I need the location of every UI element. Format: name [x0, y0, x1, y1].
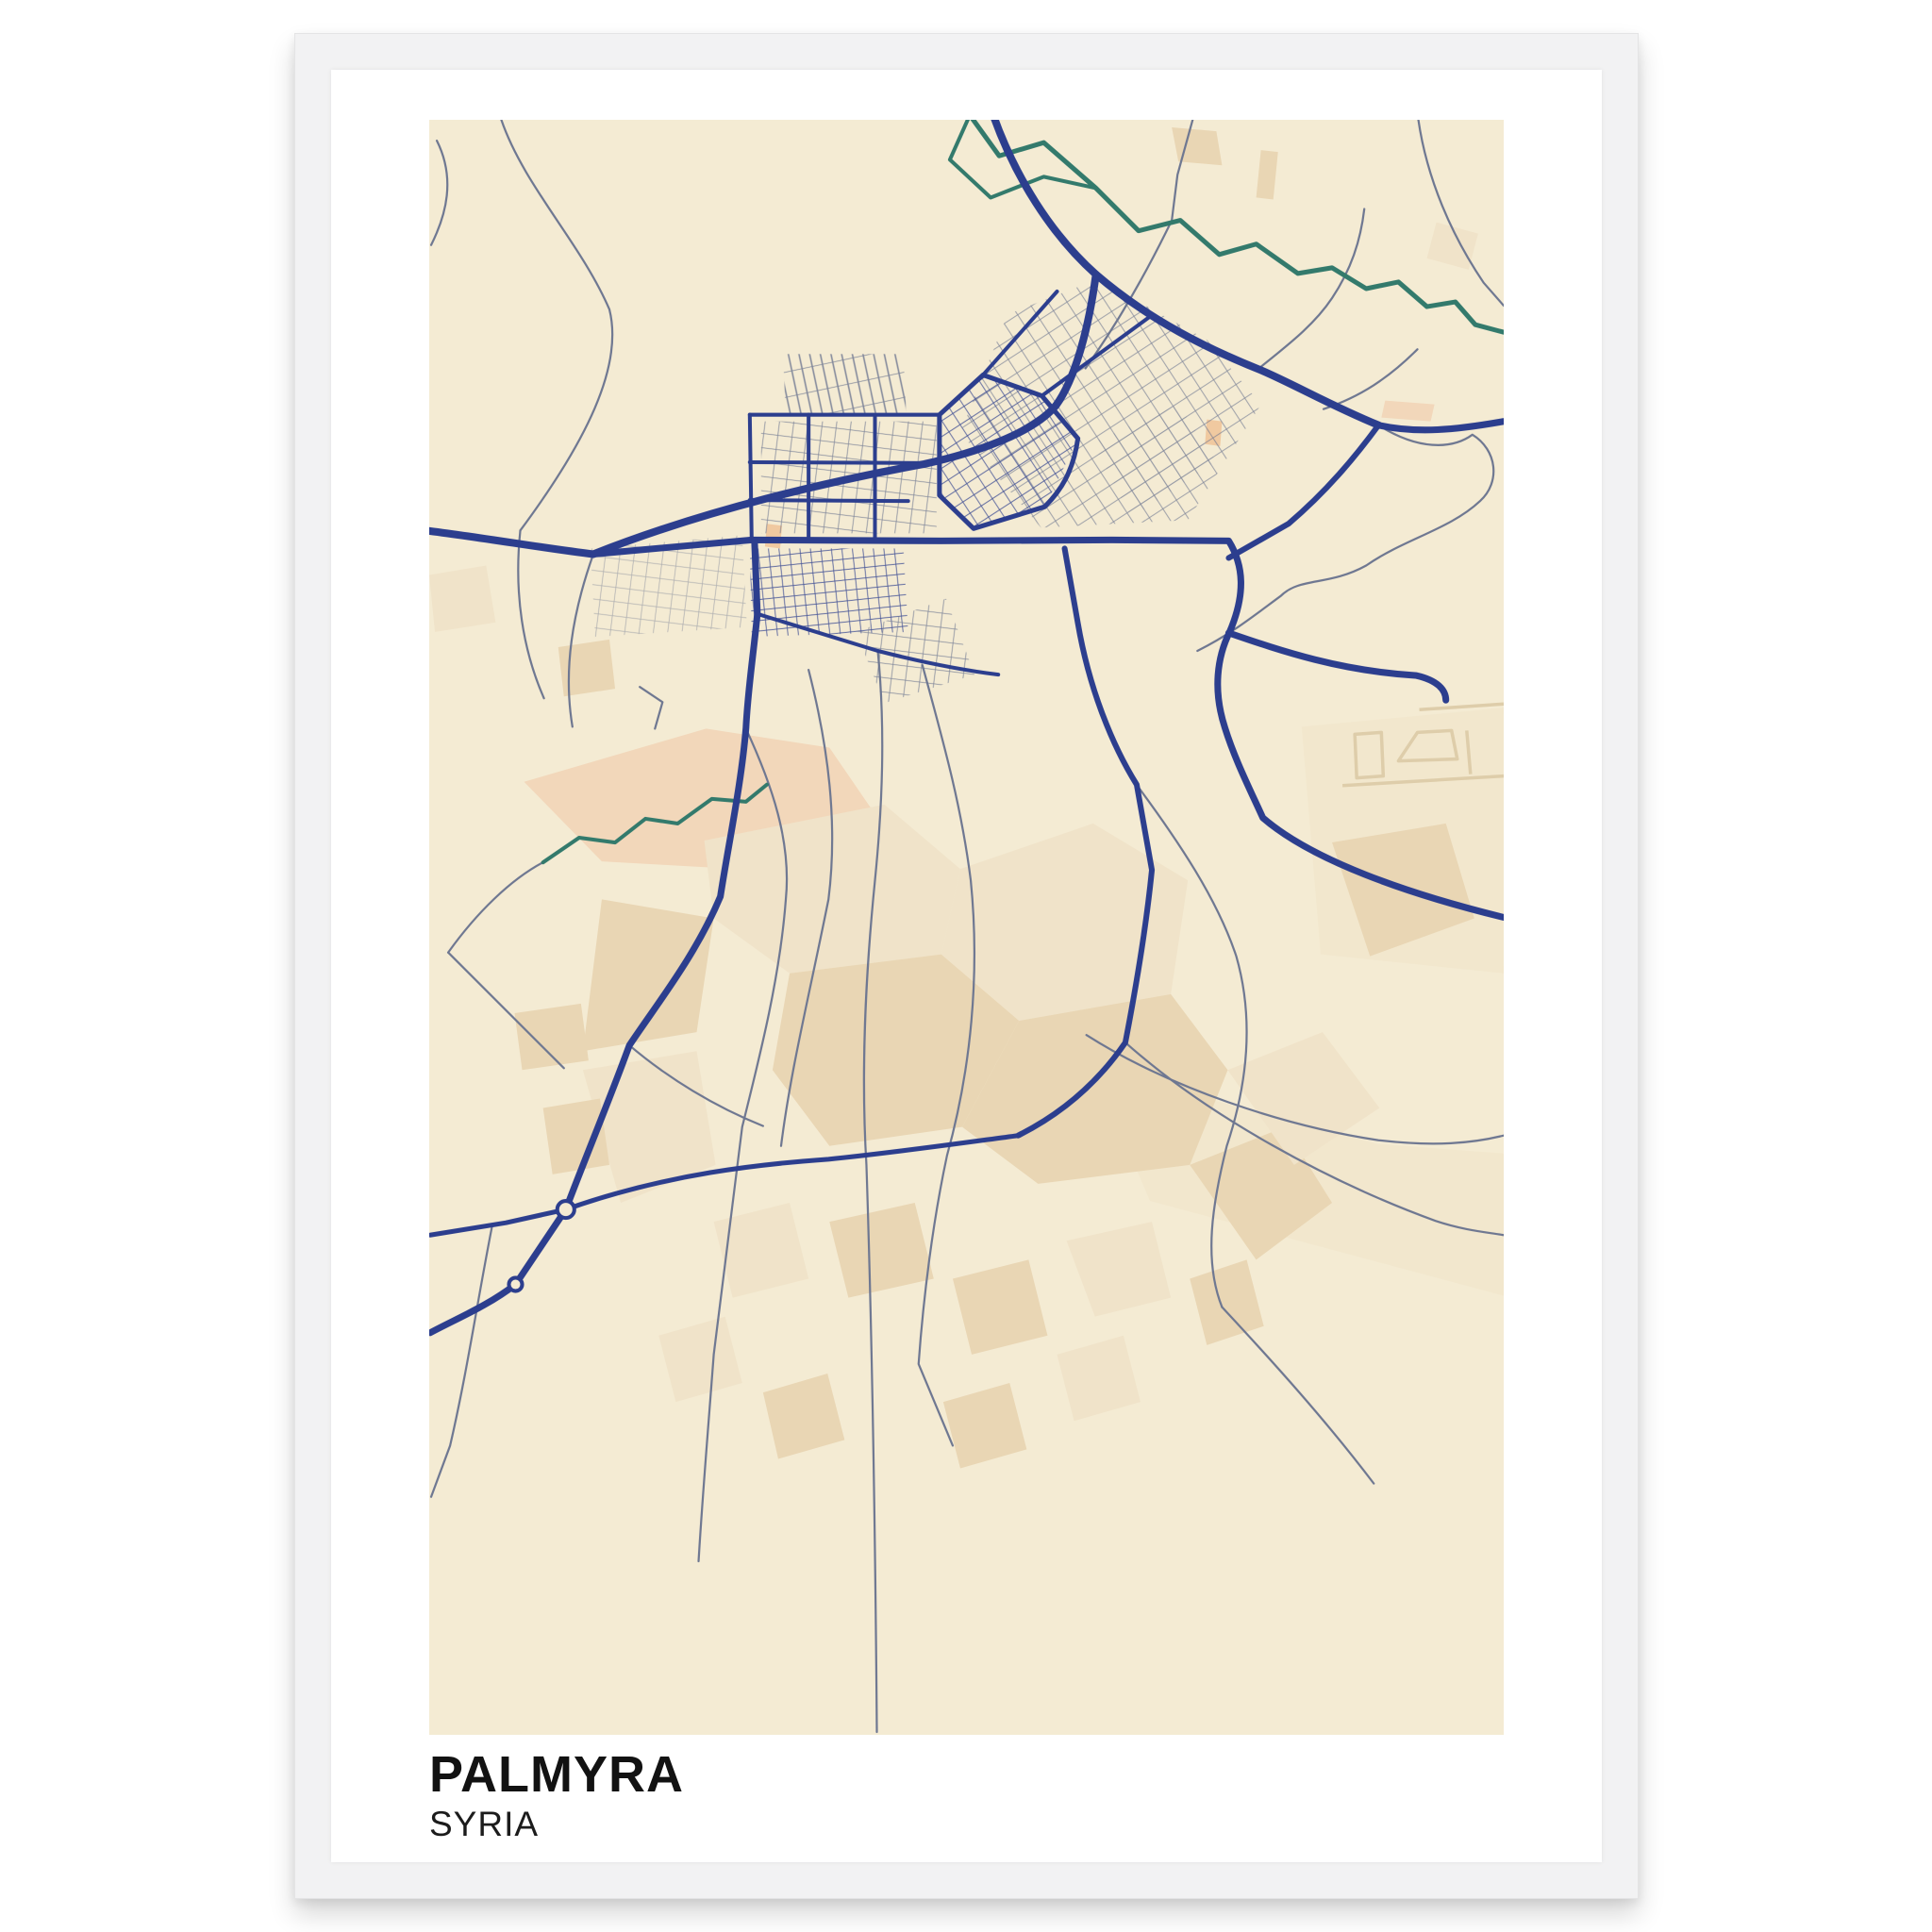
poster-frame: PALMYRA SYRIA: [294, 33, 1639, 1899]
title-block: PALMYRA SYRIA: [429, 1748, 1504, 1843]
poster-paper: PALMYRA SYRIA: [331, 70, 1602, 1862]
page-background: { "poster": { "title": "PALMYRA", "subti…: [0, 0, 1932, 1932]
roundabout: [508, 1277, 522, 1291]
roundabout: [558, 1201, 575, 1218]
map-container: [429, 120, 1504, 1735]
highway-east: [1378, 422, 1504, 430]
map-title: PALMYRA: [429, 1748, 1504, 1802]
map-subtitle: SYRIA: [429, 1806, 1504, 1844]
hook-road: [1228, 633, 1445, 700]
city-map: [429, 120, 1504, 1735]
landuse-layer: [429, 127, 1504, 1468]
street-grid-layer: [591, 279, 1261, 703]
